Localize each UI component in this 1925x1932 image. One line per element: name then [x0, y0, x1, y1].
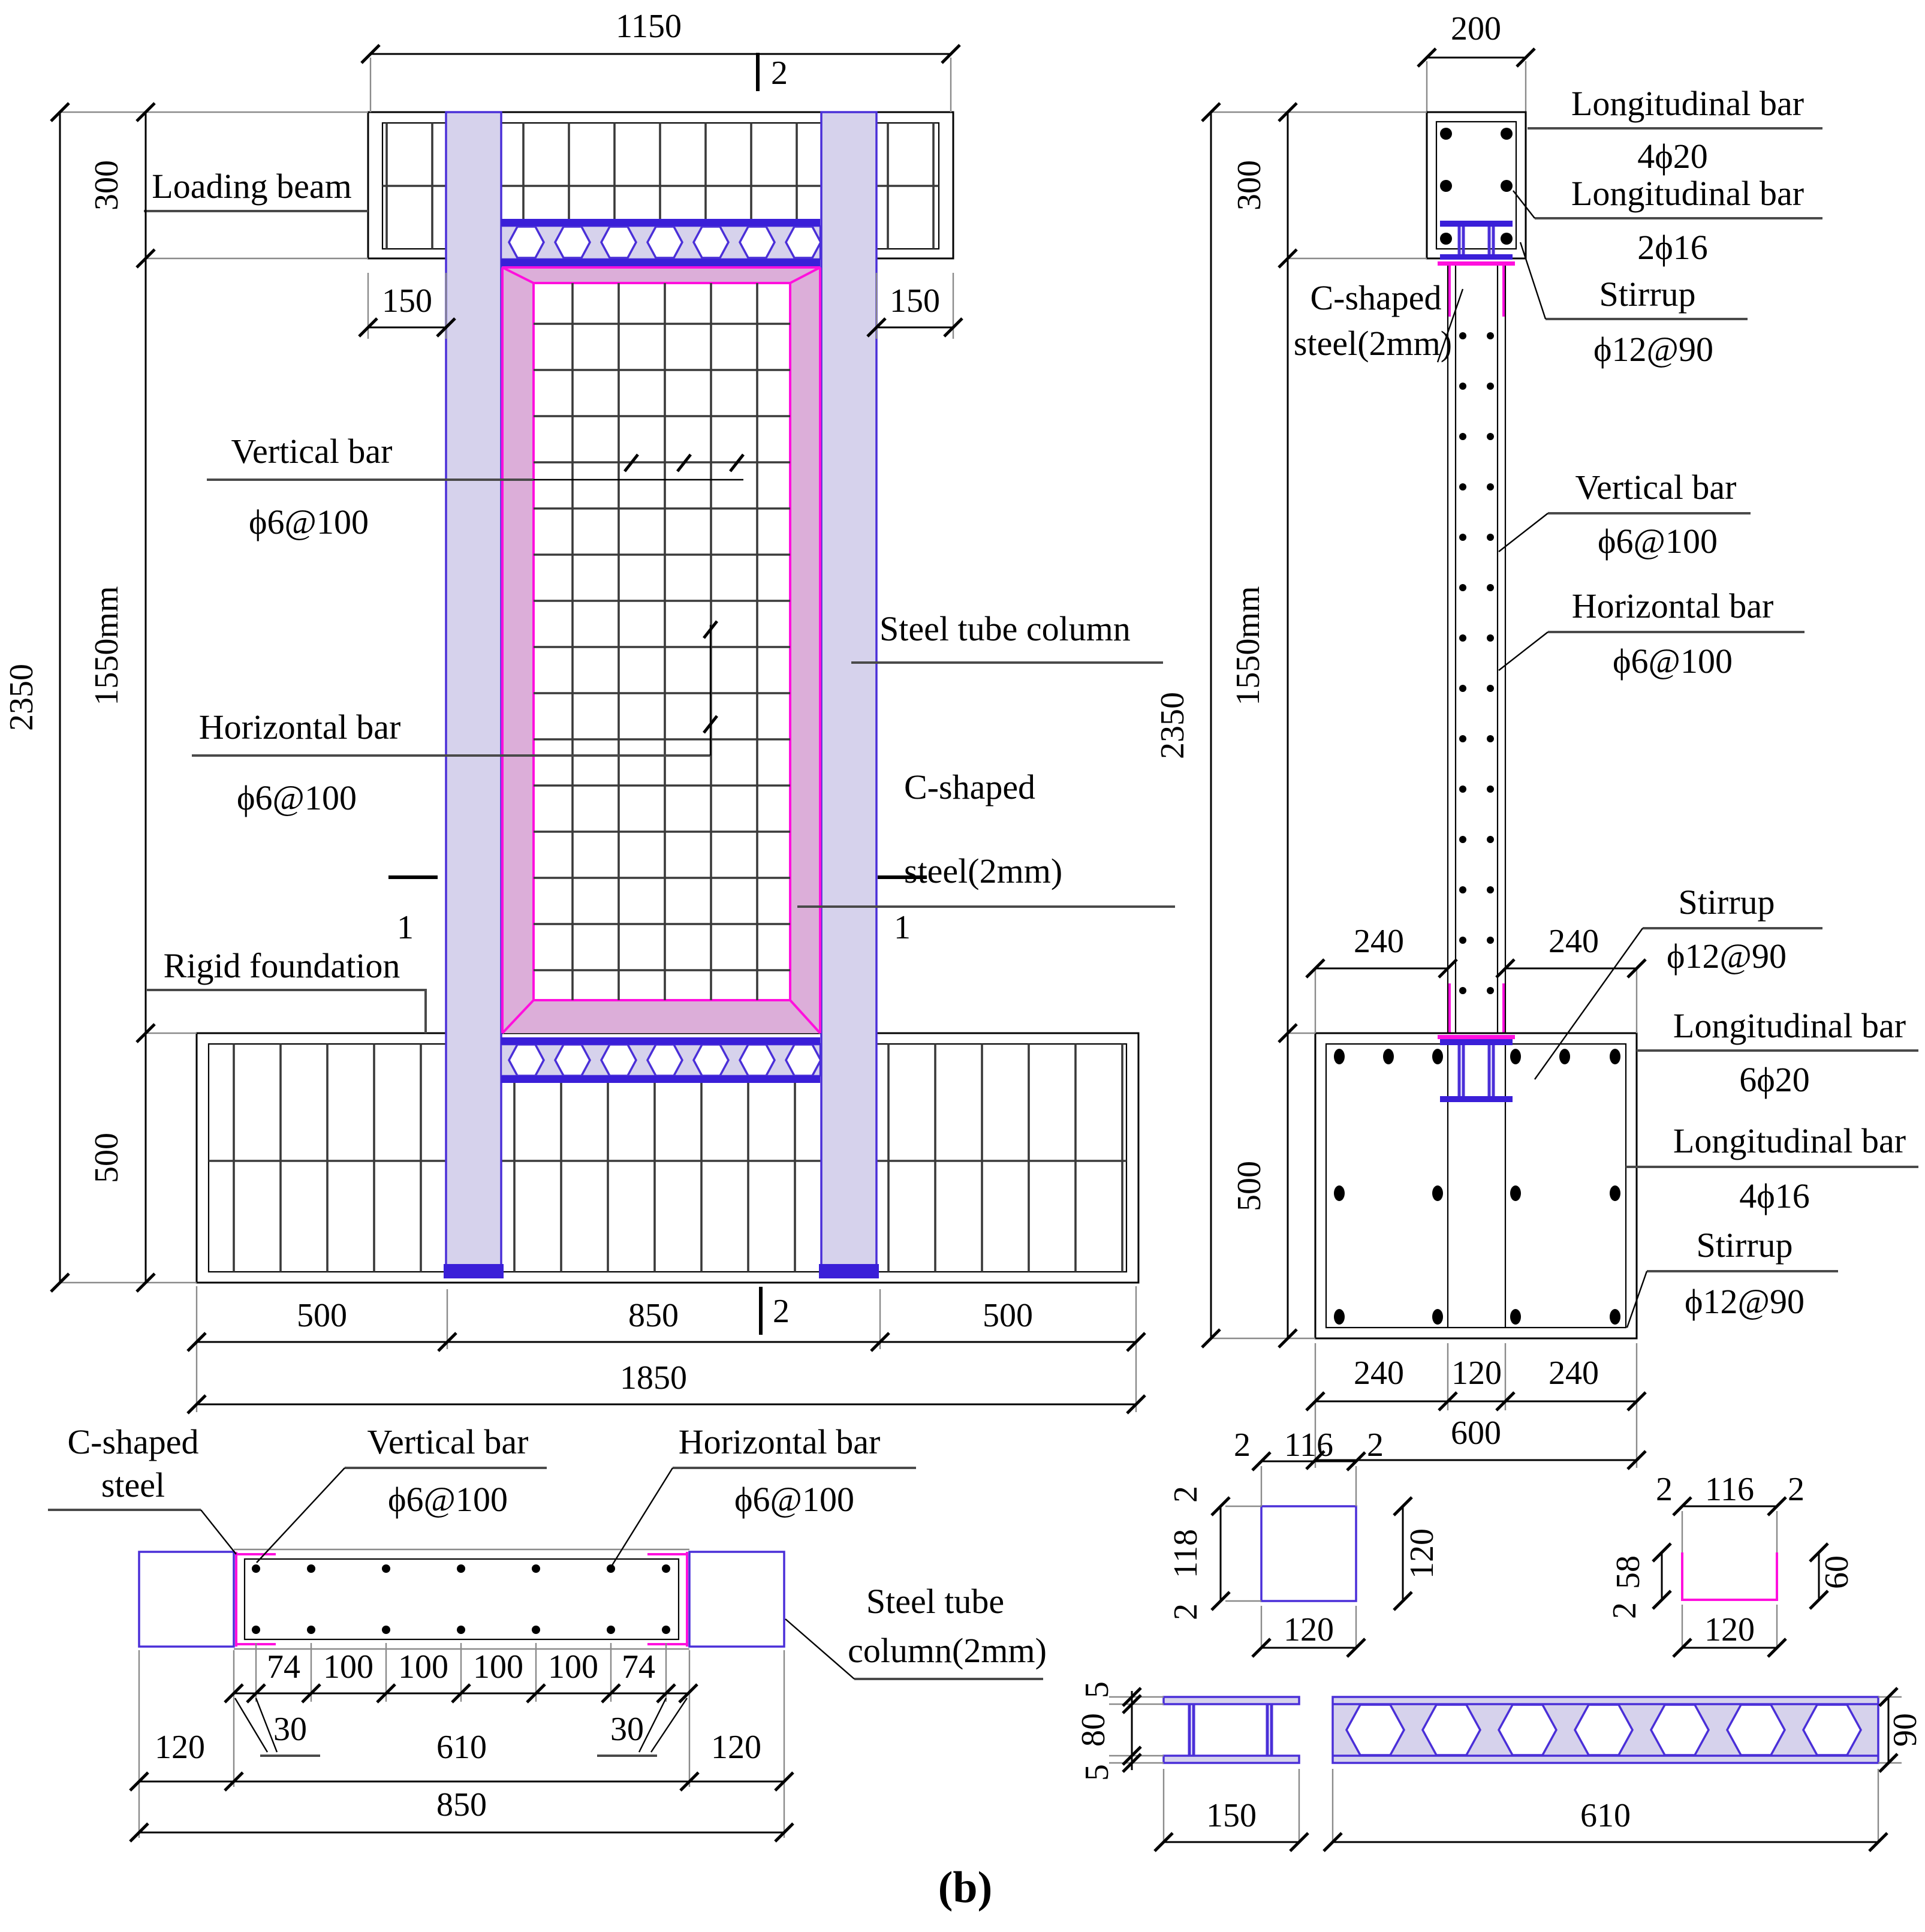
dim-240-r: 240	[1549, 923, 1599, 960]
stirrup-top-spec: ϕ12@90	[1593, 330, 1713, 369]
detail-c-channel: 2 116 2 58 2 60 120	[1606, 1471, 1855, 1657]
perforated-plate-top	[501, 219, 821, 266]
vertical-bar-label-right: Vertical bar ϕ6@100	[1499, 468, 1751, 561]
ch-top-l: 2	[1656, 1471, 1673, 1508]
right-section-view: 200	[1154, 10, 1918, 1469]
slab-right: 90	[1887, 1713, 1924, 1747]
dim-200-text: 200	[1451, 10, 1501, 47]
steel-tube-plan-1: Steel tube	[866, 1582, 1004, 1621]
ch-left-t: 58	[1610, 1555, 1647, 1589]
horizontal-bar-right-spec: ϕ6@100	[1613, 642, 1733, 681]
c-shaped-text-1: C-shaped	[904, 768, 1035, 806]
dim-1550-left: 1550mm	[88, 586, 125, 705]
loading-beam-label: Loading beam	[144, 167, 368, 211]
c-shaped-steel-frame	[502, 267, 820, 1033]
long-bar-2-spec: 2ϕ16	[1637, 228, 1708, 267]
vertical-bar-text: Vertical bar	[231, 432, 393, 471]
ch-bottom: 120	[1704, 1611, 1755, 1648]
section-marker-1-left: 1	[388, 877, 438, 946]
ib-left-m: 80	[1075, 1713, 1112, 1747]
horizontal-bar-plan-text: Horizontal bar	[679, 1422, 881, 1461]
steel-tube-column-text: Steel tube column	[879, 609, 1131, 648]
steel-tube-column-left	[444, 112, 504, 1278]
dim-850: 850	[436, 1786, 487, 1823]
dim-150-left: 150	[382, 282, 432, 320]
long-bar-4-text: Longitudinal bar	[1673, 1121, 1906, 1160]
detail-square-tube: 2 116 2 2 118 2 120 120	[1167, 1427, 1441, 1657]
c-shaped-plan-2: steel	[101, 1465, 165, 1504]
sq-left-b: 2	[1167, 1603, 1204, 1620]
rigid-foundation-text: Rigid foundation	[164, 946, 400, 985]
dim-240-l: 240	[1354, 923, 1404, 960]
dim-500-br: 500	[983, 1297, 1033, 1334]
rigid-foundation-label: Rigid foundation	[147, 946, 426, 1033]
dim-2350-right: 2350	[1154, 692, 1191, 759]
long-bar-3-text: Longitudinal bar	[1673, 1006, 1906, 1045]
sq-left-m: 118	[1167, 1529, 1204, 1578]
long-bar-1-spec: 4ϕ20	[1637, 137, 1708, 176]
stirrup-top-label: Stirrup ϕ12@90	[1520, 242, 1748, 369]
ib-left-b: 5	[1079, 1764, 1116, 1781]
long-bar-2-label: Longitudinal bar 2ϕ16	[1513, 174, 1822, 267]
vertical-bar-right-spec: ϕ6@100	[1598, 522, 1718, 561]
dim-500-bl: 500	[297, 1297, 347, 1334]
horizontal-bar-spec: ϕ6@100	[237, 778, 357, 817]
long-bar-1-label: Longitudinal bar 4ϕ20	[1528, 84, 1822, 176]
dim-100-2: 100	[398, 1648, 448, 1686]
dim-1550-right: 1550mm	[1230, 586, 1267, 705]
tube-section-right	[689, 1552, 784, 1647]
vertical-bar-label-plan: Vertical bar ϕ6@100	[257, 1422, 547, 1563]
foundation-section	[1315, 1033, 1637, 1338]
dim-top-width: 1150	[361, 8, 960, 112]
dim-200: 200	[1418, 10, 1535, 112]
slab-bottom: 610	[1580, 1797, 1631, 1834]
steel-tube-column-label: Steel tube column	[851, 609, 1163, 663]
dim-74-l: 74	[267, 1648, 300, 1686]
horizontal-bar-text: Horizontal bar	[199, 708, 401, 747]
dim-500-left: 500	[88, 1133, 125, 1183]
detail-ibeam: 5 80 5 150	[1075, 1681, 1308, 1851]
dim-300-right: 300	[1231, 160, 1268, 210]
sq-top-m: 116	[1284, 1427, 1333, 1464]
c-shaped-label-plan: C-shaped steel	[48, 1422, 236, 1554]
wall-faces	[234, 1549, 689, 1649]
horizontal-bar-label-plan: Horizontal bar ϕ6@100	[611, 1422, 916, 1566]
long-bar-3-spec: 6ϕ20	[1739, 1060, 1810, 1099]
dim-100-4: 100	[548, 1648, 598, 1686]
perforated-plate-bottom	[501, 1037, 821, 1083]
figure-label: (b)	[938, 1863, 992, 1912]
beam-cross-section	[1427, 112, 1526, 266]
ib-bottom: 150	[1206, 1797, 1257, 1834]
steel-tube-label-plan: Steel tube column(2mm)	[785, 1582, 1047, 1679]
dim-1850: 1850	[620, 1359, 687, 1397]
left-vertical-dims: 300 1550mm 500 2350	[3, 103, 368, 1292]
long-bar-3-label: Longitudinal bar 6ϕ20	[1637, 1006, 1918, 1099]
vertical-bar-right-text: Vertical bar	[1575, 468, 1737, 507]
stirrup-mid-text: Stirrup	[1678, 883, 1775, 922]
dim-74-r: 74	[622, 1648, 655, 1686]
marker-1-left-text: 1	[397, 909, 414, 946]
steel-tube-column-right	[819, 112, 879, 1278]
structural-drawing: 1150 2 Loading beam 150 150	[0, 0, 1925, 1932]
marker-1-right-text: 1	[894, 909, 911, 946]
vertical-bar-plan-text: Vertical bar	[367, 1422, 529, 1461]
plan-bar-dots	[252, 1564, 670, 1634]
sq-right: 120	[1403, 1528, 1441, 1579]
dim-300-left: 300	[88, 160, 125, 210]
foundation-bar-dots	[1334, 1049, 1620, 1325]
ch-left-b: 2	[1606, 1602, 1643, 1619]
dim-600: 600	[1451, 1415, 1501, 1452]
horizontal-bar-plan-spec: ϕ6@100	[734, 1480, 854, 1519]
dim-1150: 1150	[616, 8, 682, 45]
left-bottom-dims: 500 850 500 2 1850	[188, 1286, 1145, 1413]
dim-850-b: 850	[628, 1297, 679, 1334]
c-shaped-text-2: steel(2mm)	[904, 851, 1062, 890]
ch-top-r: 2	[1788, 1471, 1805, 1508]
ibeam-connector-bottom	[1438, 1035, 1515, 1102]
dim-610-p: 610	[436, 1729, 487, 1766]
left-elevation-view: 1150 2 Loading beam 150 150	[3, 8, 1175, 1413]
long-bar-1-text: Longitudinal bar	[1571, 84, 1804, 123]
stirrup-bot-text: Stirrup	[1696, 1226, 1793, 1265]
loading-beam-text: Loading beam	[152, 167, 351, 206]
steel-tube-plan-2: column(2mm)	[848, 1631, 1047, 1670]
dim-120-pr: 120	[711, 1729, 761, 1766]
sq-left-t: 2	[1167, 1486, 1204, 1503]
marker-2-bottom: 2	[773, 1293, 790, 1330]
long-bar-2-text: Longitudinal bar	[1571, 174, 1804, 213]
stirrup-mid-spec: ϕ12@90	[1667, 937, 1787, 976]
ch-top-m: 116	[1705, 1471, 1754, 1508]
sq-top-r: 2	[1367, 1427, 1384, 1464]
dim-240-b1: 240	[1354, 1355, 1404, 1392]
section-marker-2-top: 2	[758, 53, 788, 92]
dim-150-right: 150	[890, 282, 940, 320]
c-shaped-plan-1: C-shaped	[67, 1422, 198, 1461]
sq-bottom: 120	[1284, 1611, 1334, 1648]
dim-240-upper: 240 240	[1306, 923, 1646, 1033]
long-bar-4-label: Longitudinal bar 4ϕ16	[1626, 1121, 1918, 1215]
dim-30-r: 30	[610, 1711, 644, 1748]
dim-100-3: 100	[473, 1648, 523, 1686]
dim-120-b: 120	[1451, 1355, 1502, 1392]
horizontal-bar-label-right: Horizontal bar ϕ6@100	[1499, 586, 1805, 681]
detail-perforated-slab: 90 610	[1324, 1688, 1924, 1851]
ch-right: 60	[1818, 1555, 1855, 1589]
tube-section-left	[139, 1552, 234, 1647]
wall-reinforcement-mesh	[534, 283, 790, 1000]
vertical-bar-plan-spec: ϕ6@100	[388, 1480, 508, 1519]
c-shaped-label-right: C-shaped steel(2mm)	[1294, 278, 1463, 363]
right-bottom-dims: 240 120 240 600	[1306, 1343, 1646, 1469]
stirrup-bot-spec: ϕ12@90	[1685, 1282, 1805, 1321]
dim-120-pl: 120	[155, 1729, 205, 1766]
wall-bar-dots	[1459, 332, 1494, 994]
plan-section-view: C-shaped steel Vertical bar ϕ6@100 Horiz…	[48, 1422, 1047, 1841]
dim-240-b2: 240	[1549, 1355, 1599, 1392]
c-shaped-right-1: C-shaped	[1310, 278, 1441, 317]
dim-30-l: 30	[273, 1711, 307, 1748]
vertical-bar-spec: ϕ6@100	[249, 502, 369, 541]
dim-500-right: 500	[1231, 1161, 1268, 1211]
ib-left-t: 5	[1079, 1681, 1116, 1698]
long-bar-4-spec: 4ϕ16	[1739, 1176, 1810, 1215]
wall-side-view	[1448, 266, 1505, 1033]
dim-100-1: 100	[323, 1648, 373, 1686]
horizontal-bar-right-text: Horizontal bar	[1572, 586, 1774, 625]
stirrup-bot-label: Stirrup ϕ12@90	[1627, 1226, 1838, 1328]
plan-dims: 74 100 100 100 100 74 30 30 120 610 120 …	[130, 1643, 793, 1841]
sq-top-l: 2	[1234, 1427, 1251, 1464]
stirrup-top-text: Stirrup	[1599, 275, 1695, 314]
dim-2350-left: 2350	[3, 664, 40, 731]
c-shaped-right-2: steel(2mm)	[1294, 324, 1452, 363]
marker-2-top: 2	[771, 55, 788, 92]
